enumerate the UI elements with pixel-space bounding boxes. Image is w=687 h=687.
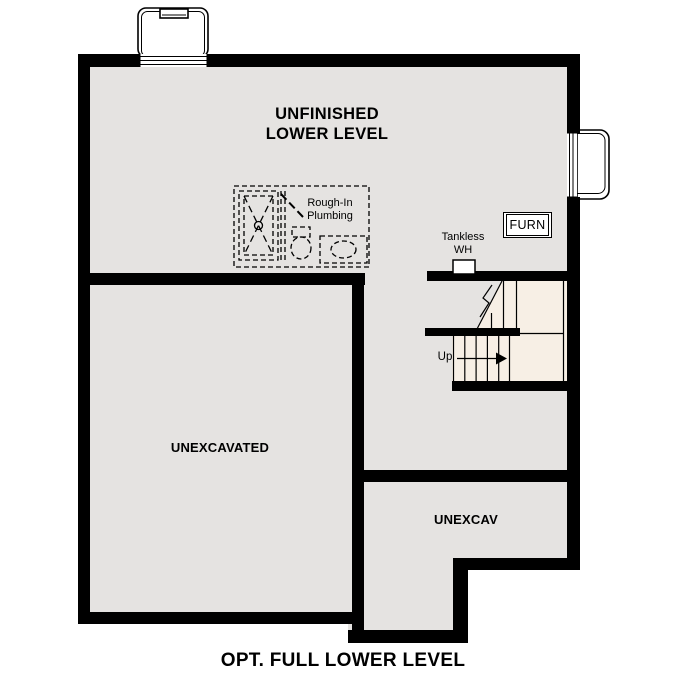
tankless-wh-unit xyxy=(453,260,475,274)
room-label-unfinished-lower-level: UNFINISHED LOWER LEVEL xyxy=(227,104,427,144)
room-label-line2: LOWER LEVEL xyxy=(227,124,427,144)
annotation-line2: WH xyxy=(433,244,493,257)
furnace-label: FURN xyxy=(506,214,549,236)
room-label-unexcavated: UNEXCAVATED xyxy=(145,440,295,455)
right-window xyxy=(567,133,577,197)
furnace-box: FURN xyxy=(503,212,552,238)
top-window xyxy=(140,54,207,67)
annotation-line2: Plumbing xyxy=(299,210,361,223)
top-window-well xyxy=(138,8,208,57)
annotation-rough-in-plumbing: Rough-In Plumbing xyxy=(299,197,361,222)
annotation-line1: Tankless xyxy=(433,231,493,244)
annotation-line1: Rough-In xyxy=(299,197,361,210)
room-label-line1: UNFINISHED xyxy=(227,104,427,124)
annotation-tankless-wh: Tankless WH xyxy=(433,231,493,257)
room-label-unexcav: UNEXCAV xyxy=(416,512,516,527)
floor-plan-page: UNFINISHED LOWER LEVEL Rough-In Plumbing… xyxy=(0,0,687,687)
right-window-well xyxy=(577,130,609,199)
plan-title: OPT. FULL LOWER LEVEL xyxy=(172,650,514,672)
stairs-up-label: Up xyxy=(432,351,458,363)
